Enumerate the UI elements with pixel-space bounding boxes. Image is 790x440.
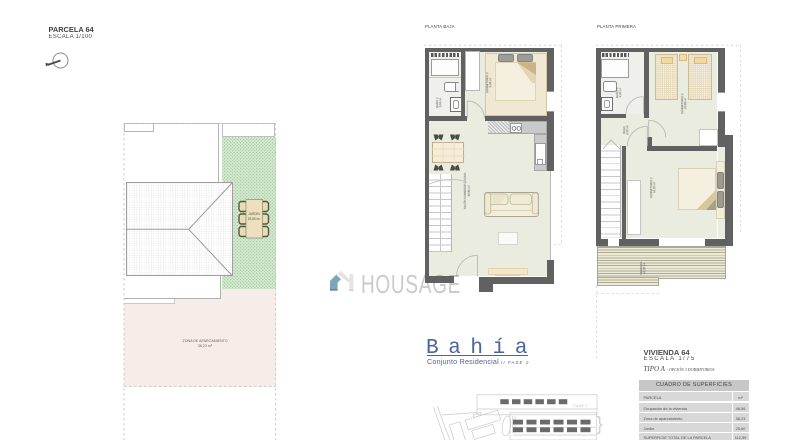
svg-text:}: } xyxy=(597,414,603,435)
svg-text:FASE 2: FASE 2 xyxy=(574,404,589,408)
